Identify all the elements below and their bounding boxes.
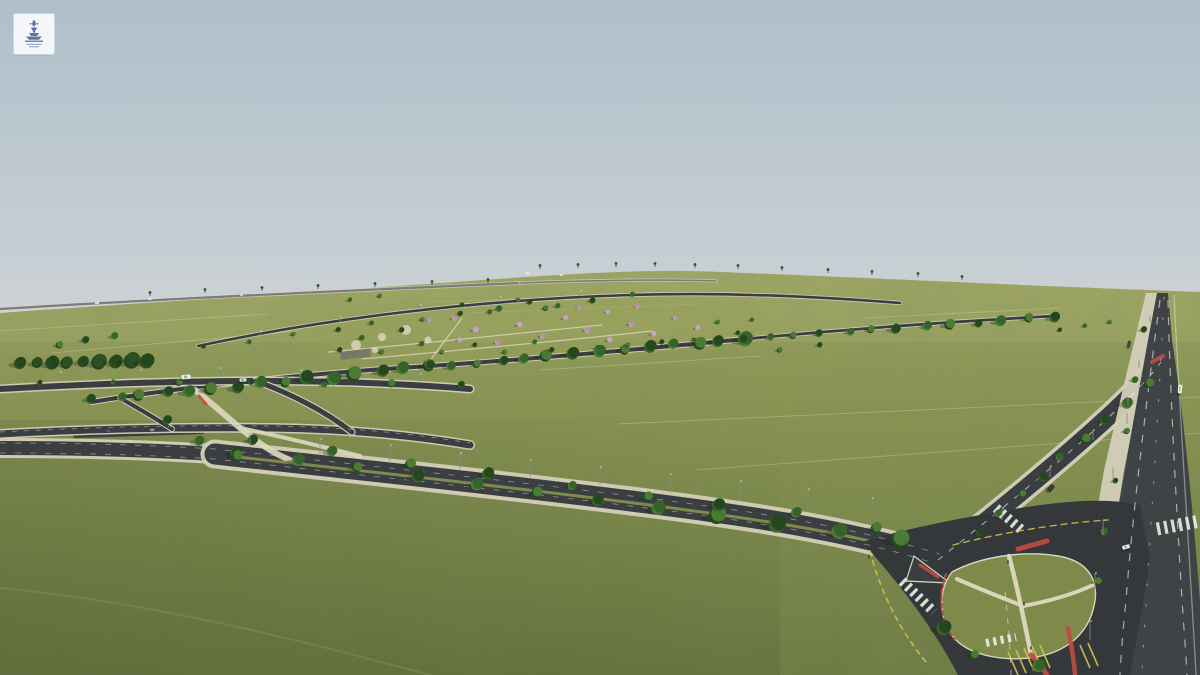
scene-svg — [0, 0, 1200, 675]
developer-logo-badge — [14, 14, 54, 54]
fountain-logo-icon — [20, 18, 48, 50]
aerial-masterplan-render — [0, 0, 1200, 675]
logo-caption-lines — [27, 44, 42, 48]
